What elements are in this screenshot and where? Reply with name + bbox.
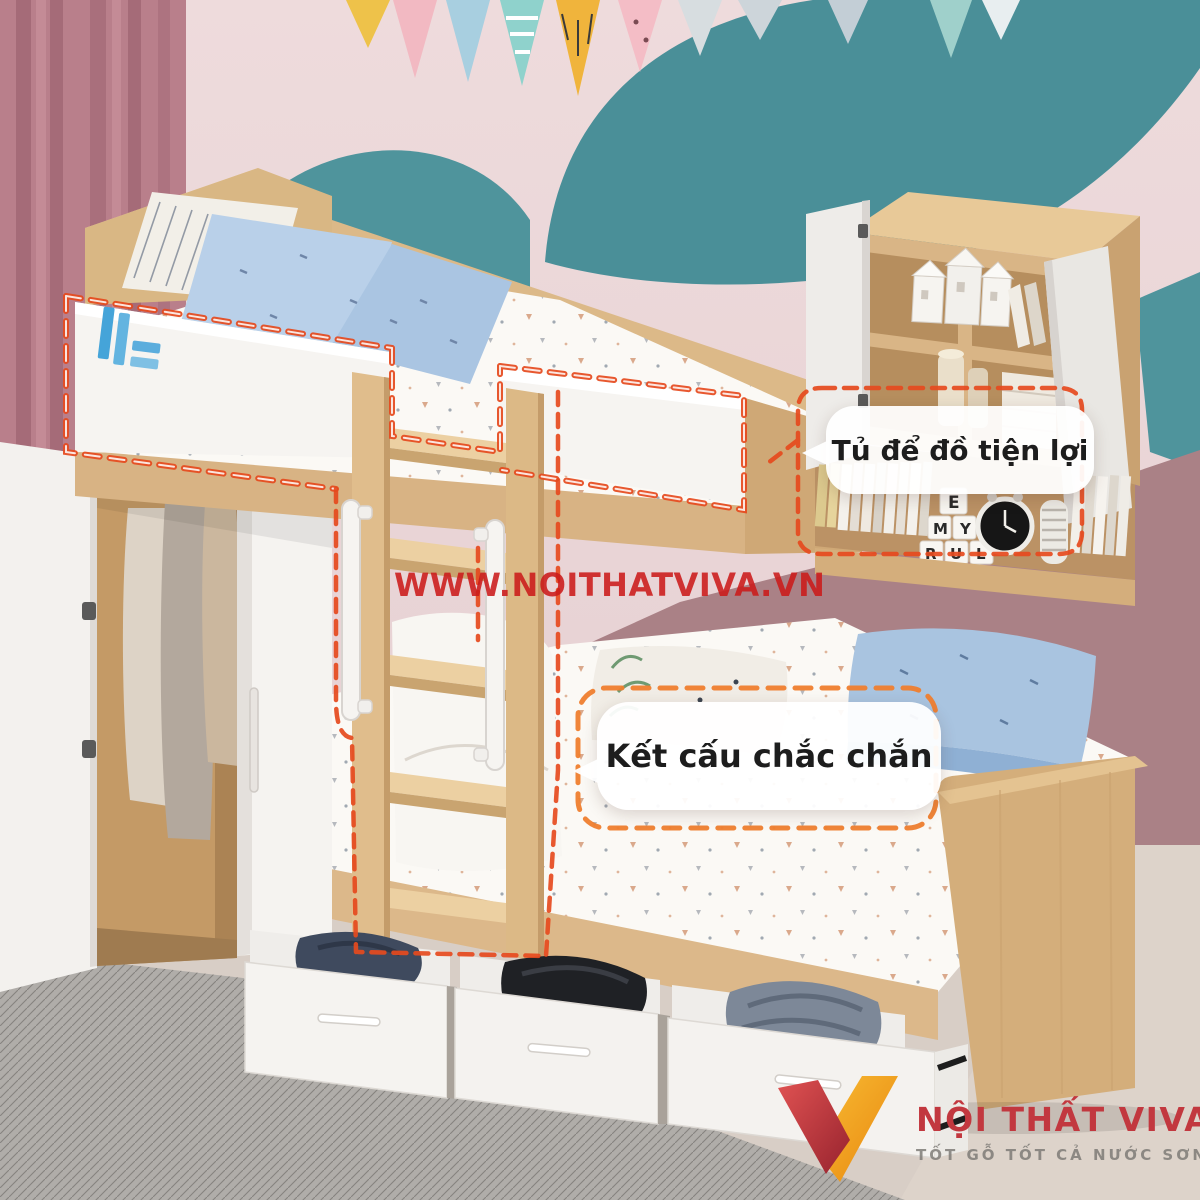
watermark: WWW.NOITHATVIVA.VN	[394, 566, 825, 604]
callout-storage-cabinet: Tủ để đồ tiện lợi	[826, 406, 1094, 494]
callout-structure-label: Kết cấu chắc chắn	[606, 737, 933, 775]
letter-block-e: E	[948, 493, 960, 513]
callout-sturdy-structure: Kết cấu chắc chắn	[597, 702, 941, 810]
brand-lockup: NỘI THẤT VIVA TỐT GỖ TỐT CẢ NƯỚC SƠN	[776, 1076, 1200, 1184]
brand-name: NỘI THẤT VIVA	[916, 1100, 1200, 1139]
letter-block-m: M	[933, 520, 948, 538]
bubble-tail	[573, 758, 600, 784]
callout-storage-label: Tủ để đồ tiện lợi	[832, 434, 1089, 467]
bedroom-product-photo: E M Y R U L	[0, 0, 1200, 1200]
wardrobe	[0, 442, 332, 992]
letter-block-y: Y	[959, 520, 972, 538]
brand-tagline: TỐT GỖ TỐT CẢ NƯỚC SƠN	[916, 1146, 1200, 1164]
bubble-tail	[802, 440, 829, 466]
viva-logo-icon	[776, 1076, 904, 1184]
